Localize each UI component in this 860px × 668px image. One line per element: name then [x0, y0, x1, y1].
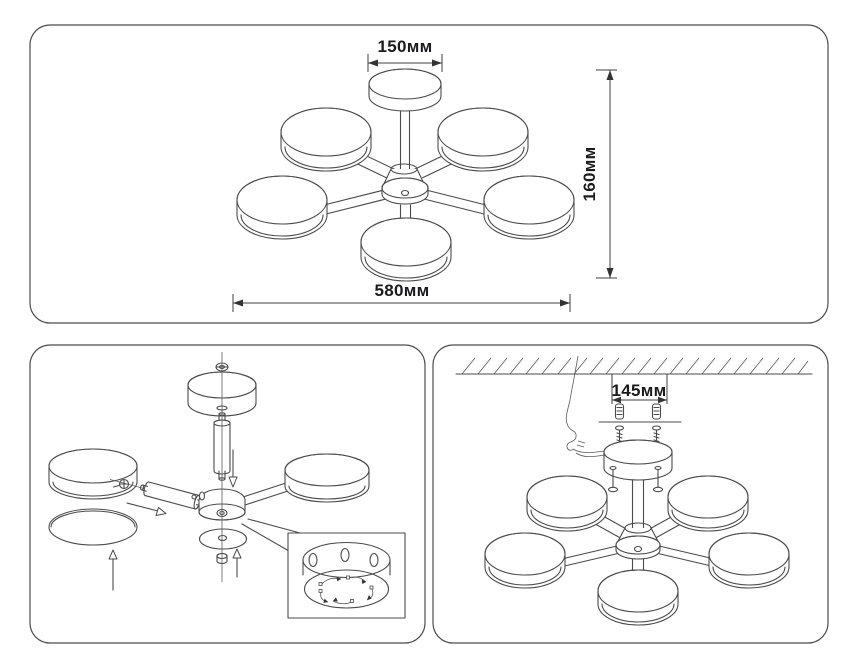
- shade-right: [484, 176, 574, 239]
- drawing-canvas: 150мм 160мм 580мм: [0, 0, 860, 668]
- diffuser-disc: [49, 509, 137, 545]
- dim-mounting-spacing-label: 145мм: [611, 381, 666, 400]
- shade-right: [709, 533, 789, 588]
- assembly-shade-left: [49, 449, 137, 499]
- panel-assembly-view: [30, 345, 425, 643]
- shade-bottom: [598, 570, 678, 625]
- dim-fixture-height-label: 160мм: [580, 146, 599, 201]
- shade-upper-right: [668, 476, 748, 531]
- shade-upper-right: [438, 108, 528, 171]
- detail-inset: [288, 533, 405, 618]
- shade-left: [237, 176, 327, 239]
- canopy: [604, 440, 672, 480]
- shade-upper-left: [281, 108, 371, 171]
- bottom-cover-disc: [200, 529, 247, 549]
- shade-bottom: [361, 218, 451, 281]
- dim-fixture-width-label: 580мм: [374, 281, 429, 300]
- panel-top-view-border: [30, 25, 828, 323]
- dim-canopy-width-label: 150мм: [377, 37, 432, 56]
- panel-mounting-view: 145мм: [433, 345, 828, 643]
- canopy: [369, 69, 441, 111]
- shade-left: [485, 533, 565, 588]
- technical-drawing-page: 150мм 160мм 580мм: [0, 0, 860, 668]
- panel-top-view: 150мм 160мм 580мм: [30, 25, 828, 323]
- shade-upper-left: [527, 476, 607, 531]
